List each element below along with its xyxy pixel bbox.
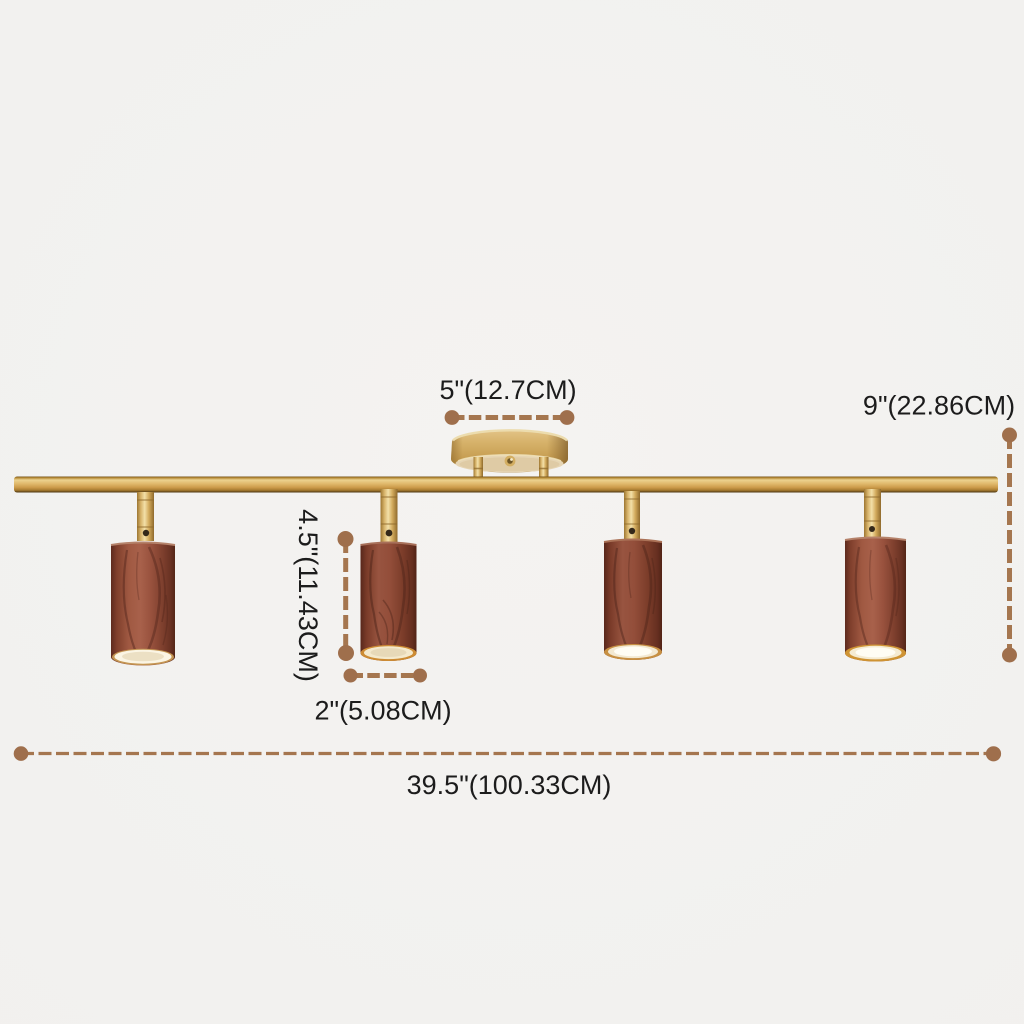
- svg-text:2"(5.08CM): 2"(5.08CM): [314, 696, 451, 726]
- svg-text:4.5"(11.43CM): 4.5"(11.43CM): [293, 509, 323, 682]
- svg-text:9"(22.86CM): 9"(22.86CM): [863, 391, 1015, 421]
- svg-text:39.5"(100.33CM): 39.5"(100.33CM): [407, 770, 612, 800]
- svg-text:5"(12.7CM): 5"(12.7CM): [439, 375, 576, 405]
